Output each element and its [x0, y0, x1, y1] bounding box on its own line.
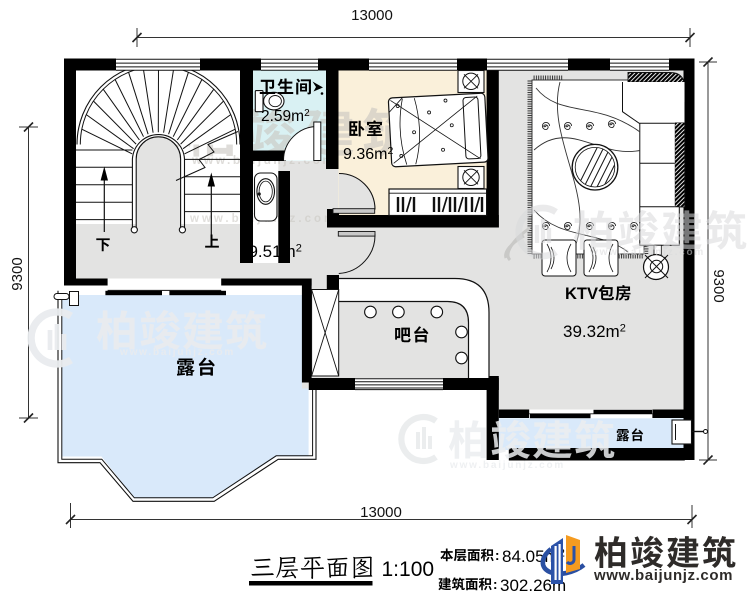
svg-text:9.36m2: 9.36m2: [343, 145, 393, 163]
svg-text:www.baijunjz.com: www.baijunjz.com: [119, 347, 235, 358]
svg-text:KTV: KTV: [565, 285, 598, 303]
svg-text:www.baijunjz.com: www.baijunjz.com: [589, 247, 705, 258]
svg-text:19.51m2: 19.51m2: [239, 242, 302, 261]
svg-text:www.baijunjz.com: www.baijunjz.com: [449, 460, 565, 471]
svg-text:13000: 13000: [360, 504, 402, 521]
svg-text:2.59m2: 2.59m2: [261, 108, 310, 125]
svg-text:9300: 9300: [9, 257, 26, 290]
svg-text:www.baijunjz.com: www.baijunjz.com: [593, 567, 733, 584]
svg-text:39.32m2: 39.32m2: [563, 322, 626, 341]
svg-text::: :: [495, 548, 500, 563]
svg-text::: :: [493, 577, 498, 592]
svg-text:13000: 13000: [351, 7, 393, 24]
svg-text:1:100: 1:100: [382, 558, 435, 581]
svg-text:9300: 9300: [710, 269, 727, 302]
